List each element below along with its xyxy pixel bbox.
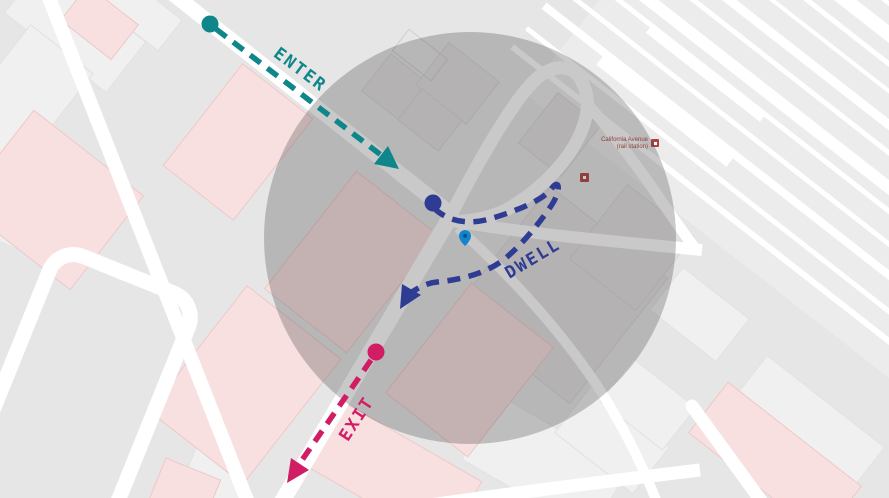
- annotations-layer: [0, 0, 889, 498]
- location-pin-icon: [459, 230, 471, 246]
- dwell-marker: [425, 195, 442, 212]
- enter-start-marker: [202, 16, 219, 33]
- exit-arrowhead: [287, 458, 309, 483]
- exit-start-marker: [368, 344, 385, 361]
- enter-route: [216, 29, 381, 155]
- map-canvas: California Avenue (rail station) ENTER D…: [0, 0, 889, 498]
